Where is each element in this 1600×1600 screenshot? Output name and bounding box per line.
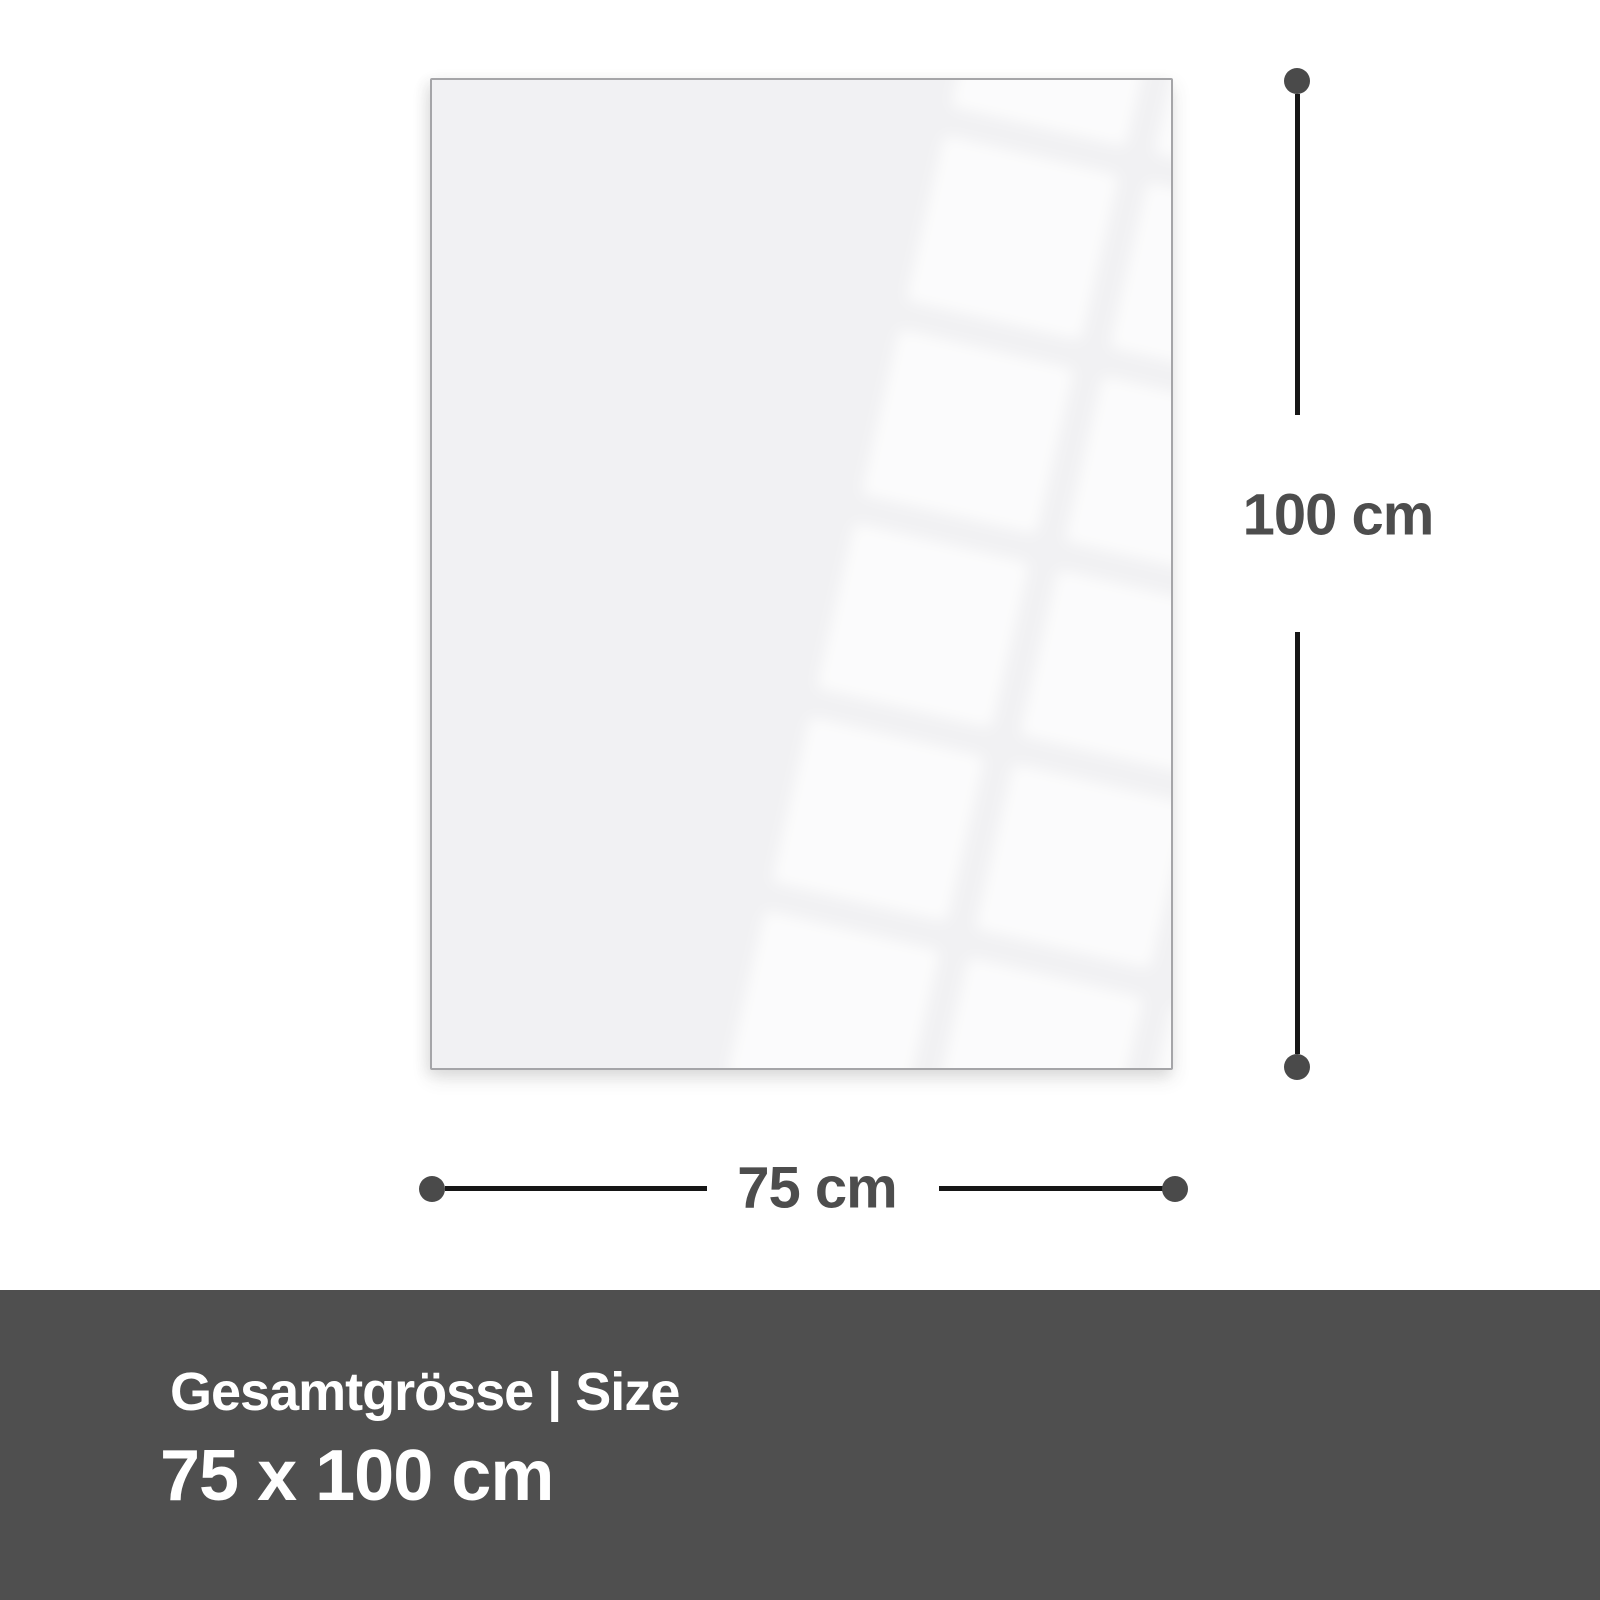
product-size-diagram: 100 cm 75 cm Gesamtgrösse | Size 75 x 10… — [0, 0, 1600, 1600]
width-line-left-segment — [445, 1186, 707, 1191]
height-line-upper-segment — [1295, 94, 1300, 415]
height-label: 100 cm — [1243, 482, 1434, 549]
glass-panel — [430, 78, 1173, 1070]
width-endpoint-left-dot — [419, 1176, 445, 1202]
width-endpoint-right-dot — [1162, 1176, 1188, 1202]
width-line-right-segment — [939, 1186, 1164, 1191]
glass-reflection — [432, 80, 1171, 1068]
height-endpoint-top-dot — [1284, 68, 1310, 94]
height-line-lower-segment — [1295, 632, 1300, 1054]
width-label: 75 cm — [737, 1155, 896, 1222]
banner-title: Gesamtgrösse | Size — [170, 1365, 679, 1419]
height-endpoint-bottom-dot — [1284, 1054, 1310, 1080]
banner-size-value: 75 x 100 cm — [160, 1440, 553, 1512]
